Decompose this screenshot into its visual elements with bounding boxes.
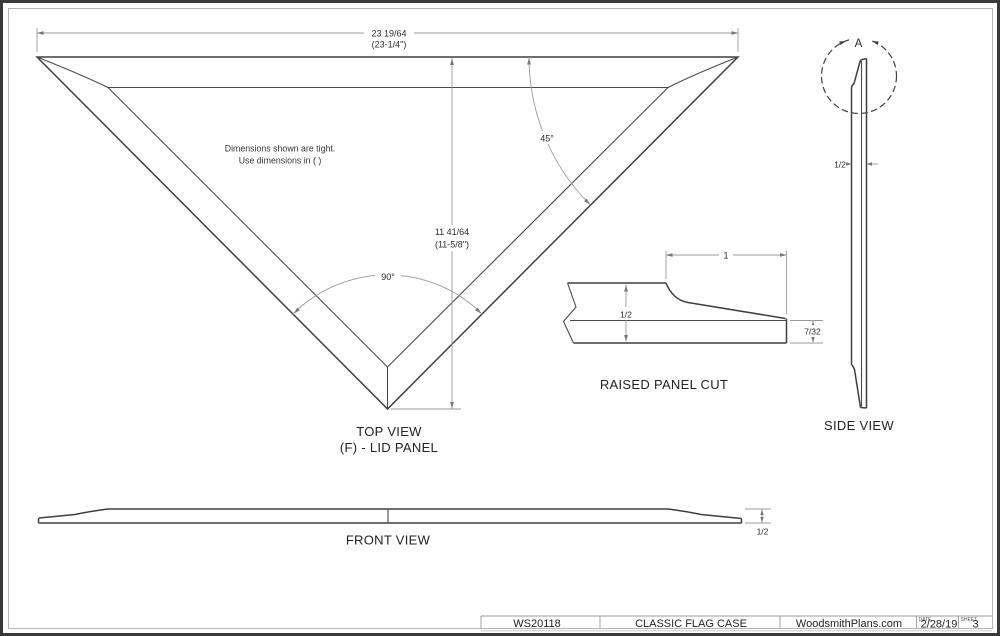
bevel-taper-line xyxy=(666,283,786,319)
width-dim-text: 23 19/64 xyxy=(371,29,406,39)
height-dimension: 11 41/64 (11-5/8") xyxy=(391,58,478,409)
width-dimension: 23 19/64 (23-1/4") xyxy=(37,27,738,53)
note-line-2: Use dimensions in ( ) xyxy=(239,156,322,166)
detail-marker-text: A xyxy=(855,38,863,50)
front-view-label: FRONT VIEW xyxy=(346,533,431,548)
dimension-note: Dimensions shown are tight. Use dimensio… xyxy=(225,144,336,166)
detail-callout-a: A xyxy=(822,31,897,114)
apex-angle-text: 90° xyxy=(381,272,395,282)
drawing-title: CLASSIC FLAG CASE xyxy=(635,618,747,630)
bevel-shoulder-line xyxy=(108,88,668,368)
height-dim-alt-text: (11-5/8") xyxy=(435,240,469,250)
break-line xyxy=(564,283,577,343)
bevel-width-dimension: 1 xyxy=(666,249,787,315)
panel-thickness-dim-text: 1/2 xyxy=(620,310,632,320)
panel-thickness-dimension: 1/2 xyxy=(615,285,637,342)
corner-angle-text: 45° xyxy=(540,134,554,144)
side-thickness-dimension: 1/2 xyxy=(834,160,878,170)
width-dim-alt-text: (23-1/4") xyxy=(372,40,407,50)
front-view: 1/2 FRONT VIEW xyxy=(39,509,772,548)
lid-panel-outline xyxy=(37,57,738,409)
sheet-border xyxy=(2,2,999,635)
front-left-taper xyxy=(39,509,108,518)
edge-thickness-dimension: 7/32 xyxy=(790,321,827,344)
front-thickness-dim-text: 1/2 xyxy=(757,527,769,537)
sheet-value: 3 xyxy=(972,619,978,631)
raised-panel-cut-label: RAISED PANEL CUT xyxy=(600,377,728,392)
raised-panel-cut-detail: 1 1/2 7/32 RAISED PANEL CUT xyxy=(564,249,828,393)
front-right-taper xyxy=(668,509,742,519)
side-bottom-tip xyxy=(861,408,867,409)
front-thickness-dimension: 1/2 xyxy=(745,509,771,537)
edge-thickness-dim-text: 7/32 xyxy=(804,327,821,337)
side-view: A 1/2 SIDE VIEW xyxy=(822,31,897,433)
side-bottom-bevel xyxy=(852,365,861,408)
note-line-1: Dimensions shown are tight. xyxy=(225,144,336,154)
drawing-canvas: 23 19/64 (23-1/4") 11 41/64 (11-5/8") 45… xyxy=(0,0,1000,636)
height-dim-text: 11 41/64 xyxy=(435,227,469,237)
side-view-label: SIDE VIEW xyxy=(824,418,894,433)
drawing-sheet: 23 19/64 (23-1/4") 11 41/64 (11-5/8") 45… xyxy=(0,0,1000,636)
side-top-tip xyxy=(861,59,867,61)
apex-angle-dimension: 90° xyxy=(293,269,483,315)
date-value: 2/28/19 xyxy=(921,619,958,631)
plan-number: WS20118 xyxy=(513,618,561,630)
corner-miter-right xyxy=(668,57,738,88)
corner-angle-dimension: 45° xyxy=(527,57,591,206)
top-view-label: TOP VIEW xyxy=(356,424,422,439)
publisher: WoodsmithPlans.com xyxy=(796,618,902,630)
top-view-sublabel: (F) - LID PANEL xyxy=(340,440,438,455)
corner-miter-left xyxy=(37,57,108,88)
side-thickness-dim-text: 1/2 xyxy=(834,160,846,170)
bevel-width-dim-text: 1 xyxy=(723,251,728,261)
side-top-bevel xyxy=(852,60,861,89)
